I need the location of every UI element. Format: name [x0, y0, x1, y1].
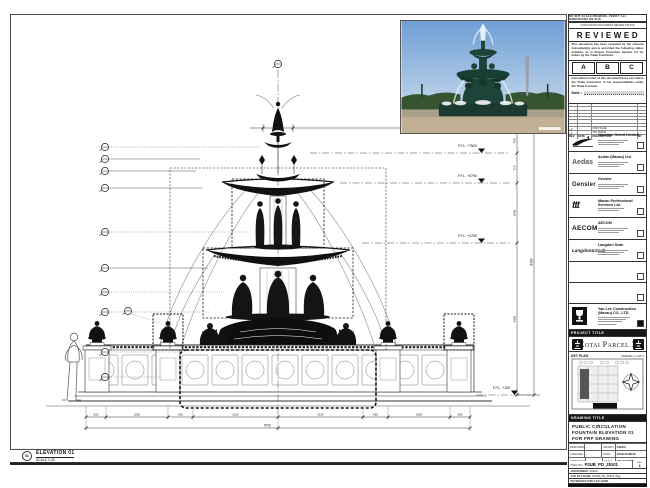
- elevation-ref-number: 01: [25, 454, 29, 458]
- svg-text:PARCEL 1, LOT 2: PARCEL 1, LOT 2: [622, 354, 645, 358]
- fountain-photo: [400, 20, 566, 134]
- sheet-bottom-border: [10, 462, 567, 465]
- project-title: Cotai Parcel 3: [579, 340, 636, 349]
- aedas-logo: Aedas: [572, 159, 593, 166]
- stamp-mps: ttt Macau Professional Services Ltd.: [568, 196, 647, 218]
- rev-value: 2: [638, 464, 640, 468]
- dwg-no-value: P3UB_PD_25101: [585, 462, 632, 467]
- svg-text:F.F.L. +4750: F.F.L. +4750: [458, 234, 477, 238]
- elevation-tag-strip: 01 ELEVATION 01 SCALE 1:25: [10, 450, 567, 462]
- svg-text:2040: 2040: [513, 209, 517, 216]
- sheet-note: DO NOT SCALE DRAWING. VERIFY ALL DIMENSI…: [569, 15, 646, 21]
- mps-logo: ttt: [572, 200, 579, 211]
- gensler-logo: Gensler: [572, 182, 596, 188]
- grade-a-box: A: [572, 62, 595, 74]
- cad-file-value: P3UB_PD_25101.dwg: [592, 474, 620, 478]
- svg-text:625: 625: [178, 413, 183, 417]
- reviewed-date-line: [584, 91, 643, 95]
- stamp-aedas: Aedas Aedas (Macau) Ltd.: [568, 152, 647, 174]
- dwg-no-row: DWG NO. P3UB_PD_25101 REV 2: [568, 461, 647, 469]
- scale-figure: [62, 333, 82, 400]
- svg-text:8100: 8100: [530, 258, 534, 265]
- svg-text:600: 600: [275, 123, 281, 127]
- key-plan-building: [580, 369, 589, 399]
- svg-text:710: 710: [513, 165, 517, 170]
- drawing-title-line3: FOR FRP DRAWING: [572, 436, 646, 442]
- stamp-checkbox: [637, 142, 644, 149]
- reviewed-title: REVIEWED: [569, 29, 646, 42]
- svg-text:500: 500: [94, 413, 99, 417]
- svg-text:4600: 4600: [513, 315, 517, 322]
- stamp-checkbox: [637, 230, 644, 237]
- venetian-logo: [571, 135, 595, 148]
- drawing-title-box: PUBLIC CIRCULATION FOUNTAIN ELEVATION 01…: [568, 422, 647, 443]
- key-plan-map: KEY PLAN PARCEL 1, LOT 2 FOUNTAIN 01: [569, 352, 646, 413]
- upper-figures: [254, 196, 302, 250]
- fountain-emblem-right: [633, 339, 644, 350]
- grade-c-box: C: [620, 62, 643, 74]
- reviewed-header: CONSULTANT DOCUMENT REVIEW STATUS: [580, 24, 634, 27]
- ref-dwg-value: -: [610, 479, 611, 483]
- stamp-checkbox: [637, 273, 644, 280]
- stamp-aecom: AECOM AECOM: [568, 218, 647, 240]
- stamp-venetian: Venetian Orient Limited: [568, 130, 647, 152]
- photo-credit: [539, 127, 561, 130]
- drawing-sheet: { "sheet": { "top_note": "DO NOT SCALE D…: [0, 0, 650, 488]
- key-plan-tag: FOUNTAIN 01: [597, 404, 614, 408]
- stamp-checkbox: [637, 208, 644, 215]
- yaulee-logo: [572, 307, 587, 325]
- reviewed-para2: Consultant review of this document does …: [569, 76, 646, 90]
- statue-tier: [226, 268, 330, 321]
- svg-text:9700: 9700: [264, 424, 271, 428]
- drawing-title-header: DRAWING TITLE: [568, 415, 647, 422]
- aecom-logo: AECOM: [572, 225, 598, 232]
- north-arrow: [623, 374, 640, 391]
- stamp-checkbox: [637, 252, 644, 259]
- job-number-value: 31123: [589, 469, 597, 473]
- plaza-ground: [401, 117, 564, 133]
- svg-text:625: 625: [373, 413, 378, 417]
- stamp-checkbox: [637, 164, 644, 171]
- sheet-note-strip: DO NOT SCALE DRAWING. VERIFY ALL DIMENSI…: [568, 14, 647, 22]
- grade-b-box: B: [596, 62, 619, 74]
- elevation-ref-bubble: 01: [22, 451, 32, 461]
- svg-text:F.F.L. +150: F.F.L. +150: [493, 386, 510, 390]
- svg-text:2125: 2125: [317, 413, 324, 417]
- project-title-header: PROJECT TITLE: [568, 330, 647, 337]
- stamp-checkbox: [637, 320, 644, 327]
- revision-table: △2 2ND ISSUE △1 1ST ISSUE REV DATE DESCR…: [568, 104, 647, 130]
- stamp-empty-1: [568, 262, 647, 283]
- stamp-langdon: Langdon&Seah Langdon Seah: [568, 240, 647, 262]
- signoff-table: DESIGNED - DRAWN CHAO CHECKED - DATE 12/…: [568, 443, 647, 461]
- svg-text:1550: 1550: [416, 413, 423, 417]
- svg-text:1550: 1550: [134, 413, 141, 417]
- elevation-title: ELEVATION 01: [36, 450, 74, 458]
- stamp-gensler: Gensler Gensler: [568, 174, 647, 196]
- stamp-empty-2: [568, 283, 647, 304]
- titleblock-bottom-bar: [568, 484, 647, 487]
- svg-text:2125: 2125: [232, 413, 239, 417]
- dwg-no-label: DWG NO.: [569, 463, 585, 467]
- stamp-checkbox: [637, 294, 644, 301]
- svg-text:KEY PLAN: KEY PLAN: [571, 354, 589, 358]
- svg-text:750: 750: [513, 138, 517, 143]
- fountain-emblem-left: [572, 339, 583, 350]
- reviewed-para1: This document has been reviewed by the r…: [569, 42, 646, 60]
- reviewed-date-label: Date :: [572, 91, 583, 95]
- reviewed-stamp: CONSULTANT DOCUMENT REVIEW STATUS REVIEW…: [568, 22, 647, 104]
- project-title-band: Cotai Parcel 3: [568, 337, 647, 352]
- key-plan: KEY PLAN PARCEL 1, LOT 2 FOUNTAIN 01: [568, 352, 647, 415]
- svg-text:F.F.L. +6790: F.F.L. +6790: [458, 174, 477, 178]
- stamp-checkbox: [637, 186, 644, 193]
- svg-text:500: 500: [458, 413, 463, 417]
- svg-text:F.F.L. +7500: F.F.L. +7500: [458, 144, 477, 148]
- stamp-yaulee: Yau Lee Construction (Macau) CO., LTD.: [568, 304, 647, 330]
